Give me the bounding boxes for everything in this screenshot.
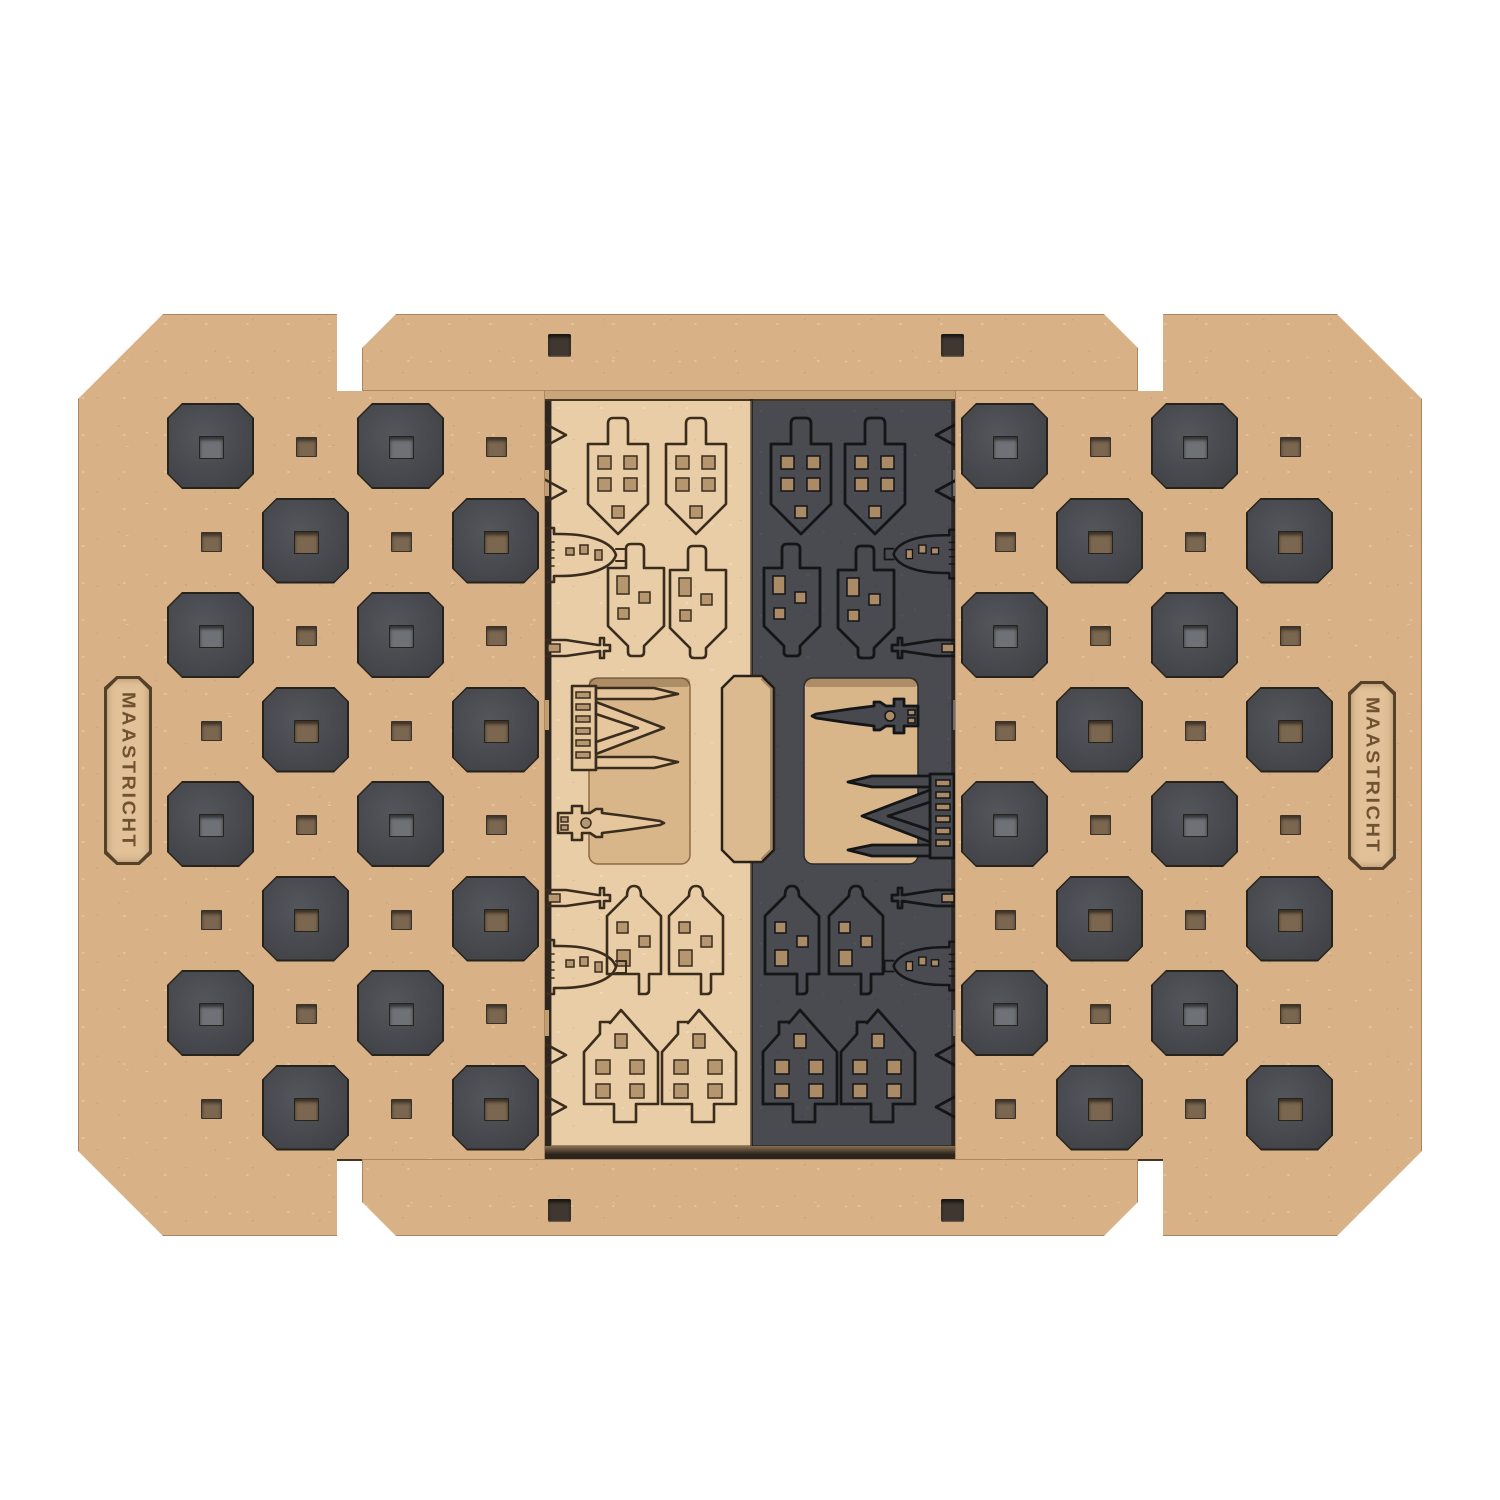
peg-hole xyxy=(296,626,317,646)
peg-hole xyxy=(486,815,507,835)
peg-hole xyxy=(1280,815,1301,835)
board-cell-dark xyxy=(1246,498,1333,584)
peg-hole xyxy=(995,721,1016,741)
board-half-left: MAASTRICHT xyxy=(78,314,545,1236)
peg-hole xyxy=(484,720,509,743)
pawn-house-outline xyxy=(666,418,726,534)
peg-hole xyxy=(484,531,509,554)
peg-hole xyxy=(1185,1099,1206,1119)
assembly-slot xyxy=(548,334,571,357)
pawn-house-outline xyxy=(584,1010,658,1122)
peg-hole xyxy=(294,531,319,554)
board-cell-dark xyxy=(357,403,444,489)
board-cell-dark xyxy=(1151,592,1238,678)
cathedral-piece xyxy=(572,686,678,770)
board-cell-dark xyxy=(262,1065,349,1151)
board-half-right: MAASTRICHT xyxy=(955,314,1422,1236)
spire-with-cross xyxy=(543,638,610,658)
handle-cutout xyxy=(722,676,774,862)
peg-hole xyxy=(486,626,507,646)
peg-hole xyxy=(1278,1098,1303,1121)
dome-church xyxy=(885,942,961,991)
peg-hole xyxy=(199,436,224,459)
board-cell-dark xyxy=(1246,876,1333,962)
pawn-house-outline xyxy=(838,546,894,658)
spire-with-cross xyxy=(892,888,960,908)
peg-hole xyxy=(1088,909,1113,932)
board-cell-dark xyxy=(452,498,539,584)
peg-hole xyxy=(484,909,509,932)
board-cell-dark xyxy=(262,687,349,773)
pawn-house-outline xyxy=(845,418,905,534)
peg-hole xyxy=(296,815,317,835)
board-cell-dark xyxy=(357,592,444,678)
engraved-plaque-right: MAASTRICHT xyxy=(1348,681,1396,870)
peg-hole xyxy=(1185,532,1206,552)
plaque-face: MAASTRICHT xyxy=(107,679,149,862)
pawn-house-outline xyxy=(829,886,883,994)
peg-hole xyxy=(389,625,414,648)
board-cell-dark xyxy=(452,876,539,962)
peg-hole xyxy=(1183,625,1208,648)
board-cell-dark xyxy=(262,876,349,962)
peg-hole xyxy=(993,625,1018,648)
peg-hole xyxy=(199,1003,224,1026)
peg-hole xyxy=(201,721,222,741)
pawn-house-outline xyxy=(841,1010,915,1122)
board-cell-dark xyxy=(357,781,444,867)
board-cell-dark xyxy=(961,970,1048,1056)
board-cell-dark xyxy=(1246,687,1333,773)
peg-hole xyxy=(486,1004,507,1024)
peg-hole xyxy=(1278,909,1303,932)
dark-tray xyxy=(804,678,954,864)
peg-hole xyxy=(389,814,414,837)
board-cell-dark xyxy=(167,970,254,1056)
peg-hole xyxy=(1090,437,1111,457)
peg-hole xyxy=(1183,814,1208,837)
board-cell-dark xyxy=(1151,403,1238,489)
plaque-text: MAASTRICHT xyxy=(1361,697,1382,854)
pawn-house-outline xyxy=(771,418,831,534)
board-cell-dark xyxy=(1151,781,1238,867)
pawn-house-outline xyxy=(588,418,648,534)
dome-church xyxy=(543,528,626,582)
dome-church xyxy=(885,530,961,579)
board-cell-dark xyxy=(357,970,444,1056)
assembly-slot xyxy=(548,1199,571,1222)
light-tray xyxy=(558,678,690,864)
peg-hole xyxy=(201,532,222,552)
peg-hole xyxy=(391,910,412,930)
peg-hole xyxy=(1278,531,1303,554)
board-cell-dark xyxy=(452,1065,539,1151)
pawn-house-outline xyxy=(763,1010,837,1122)
peg-hole xyxy=(1090,1004,1111,1024)
product-photo: MAASTRICHT MAASTRICHT xyxy=(0,0,1500,1500)
pawn-house-outline xyxy=(670,546,726,658)
board-cell-dark xyxy=(167,592,254,678)
peg-hole xyxy=(391,1099,412,1119)
spire-tip xyxy=(543,422,566,448)
piece-sheet-engravings xyxy=(543,395,962,1160)
board-cell-dark xyxy=(961,403,1048,489)
peg-hole xyxy=(1088,531,1113,554)
board-cell-dark xyxy=(1151,970,1238,1056)
peg-hole xyxy=(1090,815,1111,835)
board-cell-dark xyxy=(961,781,1048,867)
bottom-frame-bar xyxy=(362,1159,1138,1236)
peg-hole xyxy=(1280,626,1301,646)
peg-hole xyxy=(1088,1098,1113,1121)
peg-hole xyxy=(993,436,1018,459)
plaque-face: MAASTRICHT xyxy=(1351,684,1393,867)
pawn-house-outline xyxy=(662,1010,736,1122)
assembly-slot xyxy=(941,1199,964,1222)
peg-hole xyxy=(296,1004,317,1024)
board-cell-dark xyxy=(1056,687,1143,773)
peg-hole xyxy=(484,1098,509,1121)
pawn-house-outline xyxy=(669,886,723,994)
peg-hole xyxy=(995,910,1016,930)
peg-hole xyxy=(993,1003,1018,1026)
peg-hole xyxy=(1185,721,1206,741)
peg-hole xyxy=(1278,720,1303,743)
peg-hole xyxy=(389,436,414,459)
peg-hole xyxy=(995,1099,1016,1119)
peg-hole xyxy=(1185,910,1206,930)
spire-with-cross xyxy=(543,888,610,908)
peg-hole xyxy=(201,910,222,930)
board-cell-dark xyxy=(1246,1065,1333,1151)
board-cell-dark xyxy=(1056,498,1143,584)
board-cell-dark xyxy=(1056,1065,1143,1151)
peg-hole xyxy=(1183,1003,1208,1026)
board-cell-dark xyxy=(167,403,254,489)
dark-sheet-pieces xyxy=(763,418,960,1122)
engraved-plaque-left: MAASTRICHT xyxy=(104,676,152,865)
peg-hole xyxy=(486,437,507,457)
plaque-text: MAASTRICHT xyxy=(117,692,138,849)
peg-hole xyxy=(294,720,319,743)
peg-hole xyxy=(201,1099,222,1119)
peg-hole xyxy=(1088,720,1113,743)
peg-hole xyxy=(199,625,224,648)
board-cell-dark xyxy=(167,781,254,867)
pawn-house-outline xyxy=(764,544,820,656)
peg-hole xyxy=(391,532,412,552)
dome-church xyxy=(543,940,626,994)
top-frame-bar xyxy=(362,314,1138,391)
peg-hole xyxy=(1183,436,1208,459)
assembly-slot xyxy=(941,334,964,357)
peg-hole xyxy=(995,532,1016,552)
light-sheet-pieces xyxy=(543,418,736,1122)
peg-hole xyxy=(294,1098,319,1121)
board-cell-dark xyxy=(961,592,1048,678)
peg-hole xyxy=(993,814,1018,837)
peg-hole xyxy=(391,721,412,741)
board-cell-dark xyxy=(1056,876,1143,962)
peg-hole xyxy=(1090,626,1111,646)
spire-tip xyxy=(543,1042,566,1068)
board-cell-dark xyxy=(452,687,539,773)
pawn-house-outline xyxy=(607,886,661,994)
spire-tip xyxy=(543,1094,566,1120)
board-cell-dark xyxy=(262,498,349,584)
peg-hole xyxy=(294,909,319,932)
spire-with-cross xyxy=(892,638,960,658)
cathedral-piece xyxy=(848,774,954,858)
peg-hole xyxy=(1280,437,1301,457)
pawn-house-outline xyxy=(765,886,819,994)
peg-hole xyxy=(389,1003,414,1026)
peg-hole xyxy=(1280,1004,1301,1024)
peg-hole xyxy=(199,814,224,837)
peg-hole xyxy=(296,437,317,457)
